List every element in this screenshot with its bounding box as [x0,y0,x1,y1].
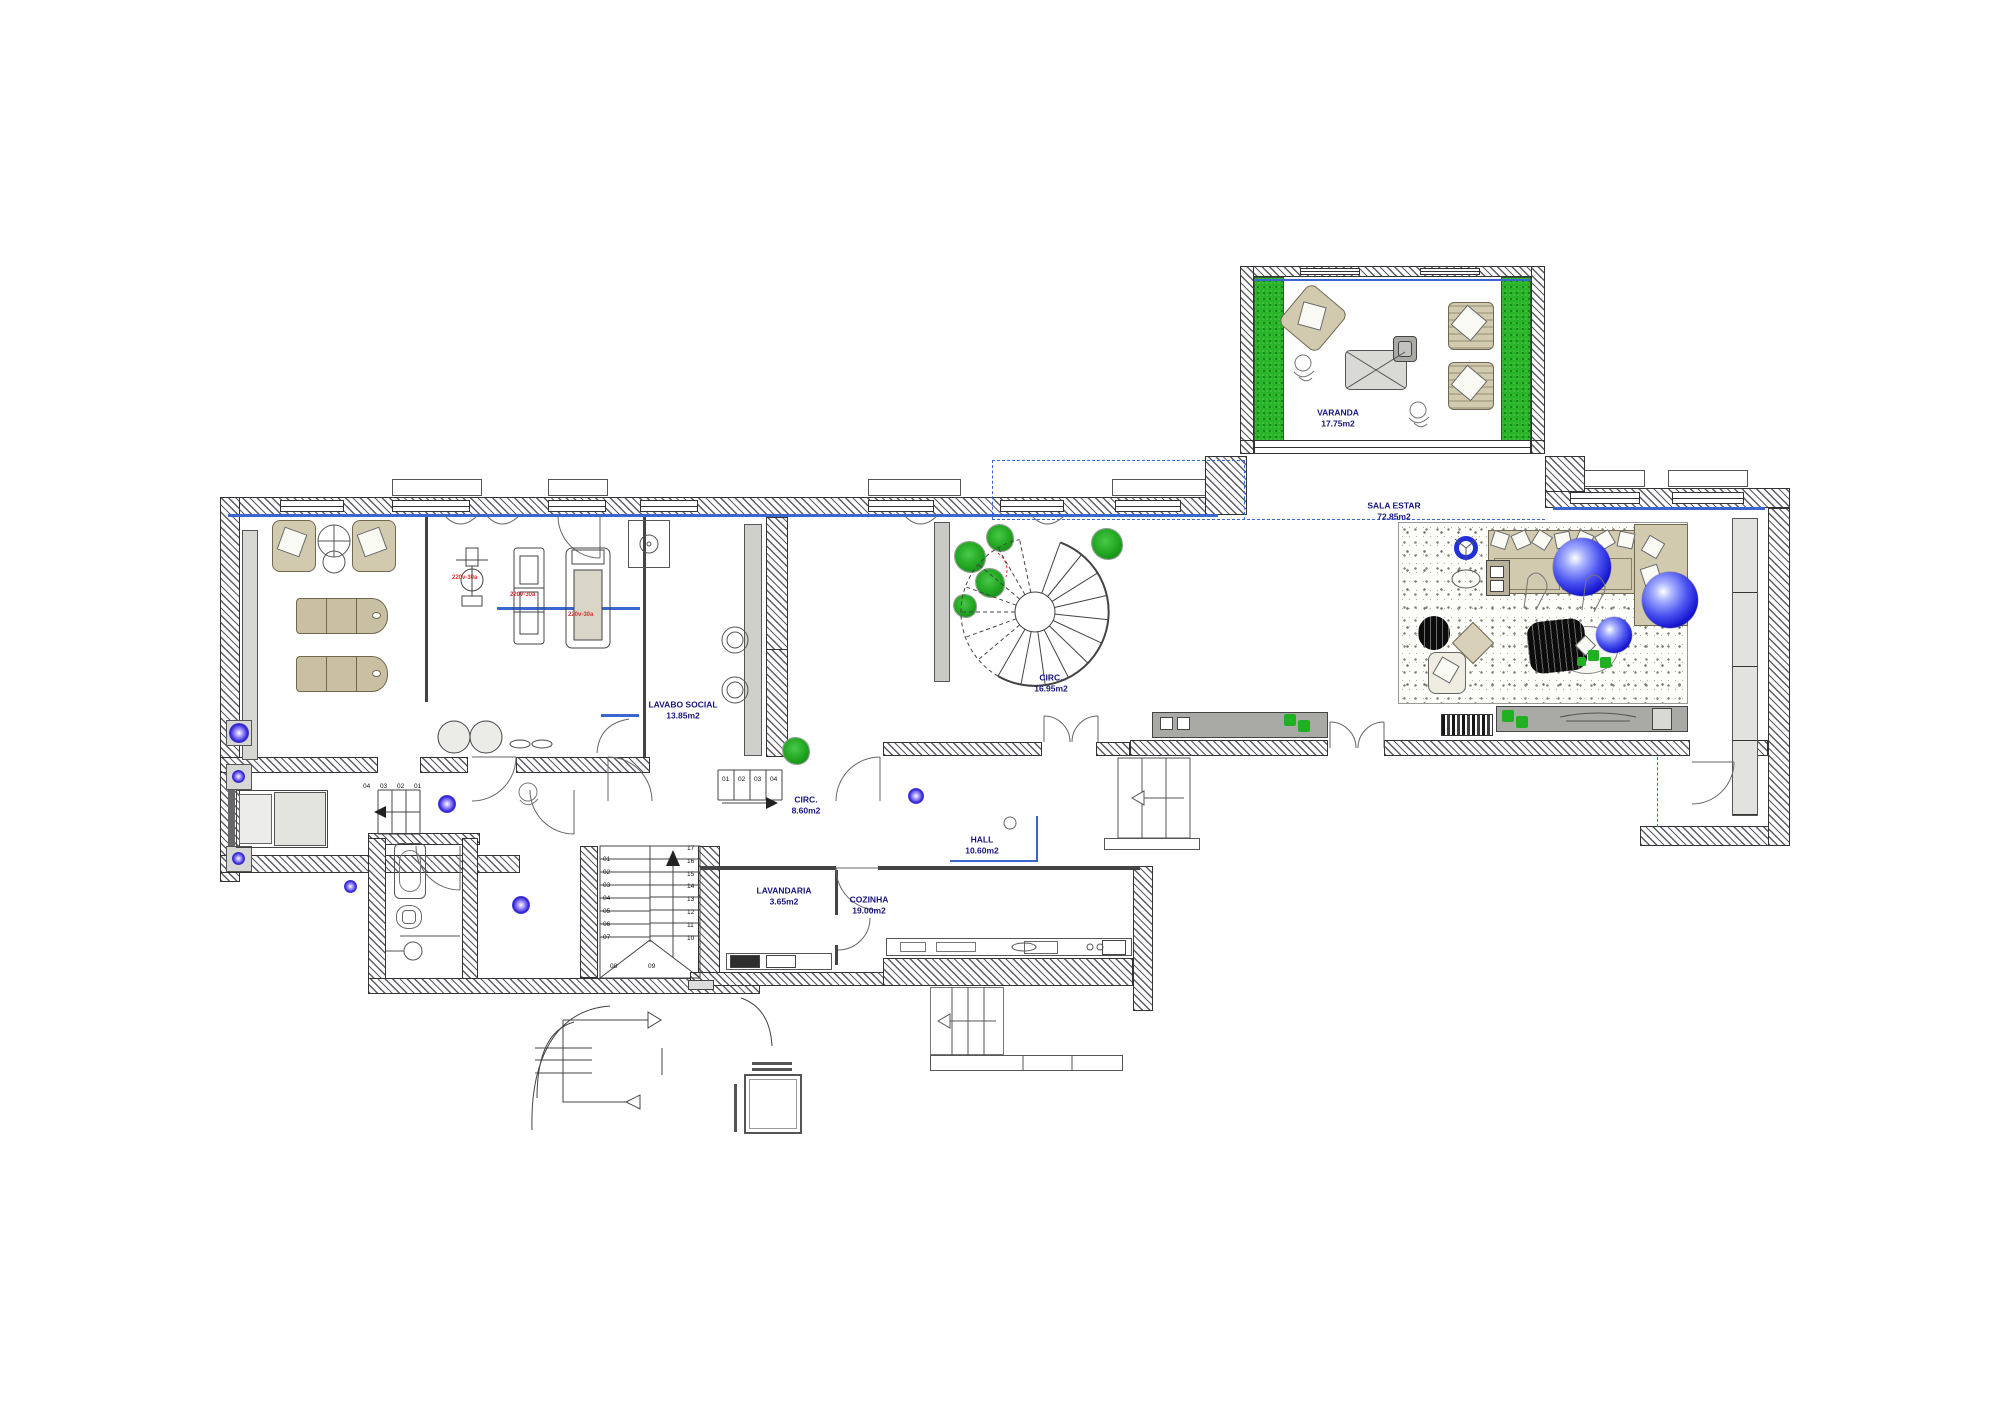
room-label-circ-spiral: CIRC. 16.95m2 [1034,672,1068,693]
wall-lavandaria-bottom [690,972,886,986]
plant-spiral-3 [976,569,1004,597]
blueline-hall-h [950,860,1038,862]
utility-box [688,980,714,990]
wall-living-bottom-b [1384,740,1690,756]
wall-hall-top-b [1096,742,1130,756]
massage-table-1-line-b [356,599,357,633]
wall-bottom-lounge-b [420,757,468,773]
lounge-round-table [318,525,350,557]
blueline-gym-2 [601,714,639,717]
glow-light-hall [908,788,924,804]
stair-num: 13 [687,897,694,904]
massage-table-1-line-a [326,599,327,633]
stair-num: 04 [363,784,370,791]
stair-num: 06 [603,922,610,929]
puzzle-deco-3 [1577,657,1586,666]
bed-headboard [228,790,235,848]
nightstand-2-light [232,852,245,865]
massage-table-1-hole [372,612,381,619]
blueline-hall-v [1036,816,1038,862]
wall-bath-left [368,838,386,990]
sofa-side-tray-2 [1490,580,1504,592]
floor-plan: 220v-30a 220v-30a 220v-30a [0,0,2000,1414]
room-name: SALA ESTAR [1367,500,1420,511]
washer [730,955,760,968]
sideboard-puzzle-1 [1284,714,1296,726]
stair-num: 02 [738,777,745,784]
puzzle-deco-1 [1588,650,1599,661]
veranda-window-top-1 [1300,268,1360,275]
sofa-side-tray-1 [1490,566,1504,578]
wall-stair-left [580,846,598,978]
stair-num: 10 [687,936,694,943]
partition-kitchen-left-a [835,870,838,915]
room-name: COZINHA [850,894,889,905]
sofa-pillow-7 [1617,531,1636,550]
stair-num: 12 [687,910,694,917]
stair-num: 05 [603,909,610,916]
wall-lavabo-right-upper [766,517,788,651]
blueline-top-right [1553,507,1765,510]
electrical-note-1: 220v-30a [452,575,477,581]
garden-stair-platform [1104,838,1200,850]
wall-living-bottom-a [1130,740,1328,756]
room-label-lavandaria: LAVANDARIA 3.65m2 [757,885,812,906]
stair-num: 02 [603,870,610,877]
room-area: 19.00m2 [850,905,889,916]
room-name: CIRC. [792,794,821,805]
wall-kitchen-bottom [883,958,1133,986]
stair-num: 02 [397,784,404,791]
bookshelf [1441,714,1493,736]
path-arrow-right [648,1012,661,1028]
electrical-note-2: 220v-30a [510,592,535,598]
wall-light-glow [229,723,249,743]
sideboard-puzzle-2 [1298,720,1310,732]
stair-num: 08 [610,964,617,971]
veranda-window-top-2 [1420,268,1480,275]
wall-veranda-top [1240,266,1545,277]
stair-num: 14 [687,884,694,891]
blueline-veranda [1254,279,1531,281]
veranda-door-band [1254,440,1531,454]
garden-bench-left [734,1084,737,1132]
puzzle-deco-2 [1600,657,1611,668]
spiral-area-column [934,522,950,682]
veranda-hedge-right [1501,277,1531,443]
room-label-lavabo: LAVABO SOCIAL 13.85m2 [648,699,717,720]
stair-num: 03 [603,883,610,890]
weight-bowl-2 [532,740,552,748]
stair-up-arrow [666,850,680,866]
room-area: 3.65m2 [757,896,812,907]
partition-lounge-gym [425,517,428,702]
wall-kitchen-right [1133,866,1153,1011]
stair-num: 16 [687,859,694,866]
wall-bath-right [462,838,478,980]
bed-steps-arrow [374,806,386,818]
stair-num: 01 [414,784,421,791]
stair-num: 17 [687,846,694,853]
blueline-gym-1 [497,607,640,610]
toilet-seat [402,910,416,924]
wall-lavabo-right-lower [766,649,788,757]
nightstand-1-light [232,770,245,783]
wall-veranda-right [1531,266,1545,454]
window-1 [280,500,344,512]
window-3 [548,500,606,512]
bathtub-inner [399,850,421,892]
room-label-varanda: VARANDA 17.75m2 [1317,407,1359,428]
lavabo-counter [744,524,762,756]
glow-light-circ [438,795,456,813]
room-area: 10.60m2 [965,845,999,856]
stair-num: 04 [603,896,610,903]
wall-right-exterior [1768,508,1790,846]
partition-kitchen-left-b [835,945,838,965]
kitchen-appliance-1 [900,942,926,952]
black-round-pouf [1418,616,1450,650]
room-name: VARANDA [1317,407,1359,418]
right-wall-cabinet [1732,518,1758,816]
main-staircase [600,846,700,978]
entry-steps-arrow [766,797,778,809]
kitchen-sink [1024,941,1058,954]
path-arrow-left [626,1095,640,1109]
partition-kitchen-top [878,866,1140,870]
stair-num: 09 [648,964,655,971]
bath-sink [404,942,422,960]
wall-veranda-left [1240,266,1254,454]
window-sill-1 [392,479,482,496]
window-sill-6 [1668,470,1748,487]
wall-veranda-stub-r [1531,440,1545,454]
blue-sphere-large-1 [1553,538,1611,596]
garden-bench-top-1 [752,1062,792,1065]
room-area: 13.85m2 [648,710,717,721]
room-name: HALL [965,834,999,845]
room-area: 16.95m2 [1034,683,1068,694]
room-name: LAVABO SOCIAL [648,699,717,710]
dryer [766,955,796,968]
stair-num: 07 [603,935,610,942]
room-label-hall: HALL 10.60m2 [965,834,999,855]
bed-pillow-zone [239,794,272,844]
linework-overlay [0,0,2000,1414]
bed-mattress [274,792,326,846]
media-puzzle-2 [1516,716,1528,728]
plant-spiral-4 [954,595,976,617]
blue-sphere-large-2 [1642,572,1698,628]
kitchen-fridge [1102,940,1126,955]
plant-spiral-5 [1092,529,1122,559]
window-4 [640,500,698,512]
room-label-circ-entry: CIRC. 8.60m2 [792,794,821,815]
glow-light-bath-entry [344,880,357,893]
exercise-ball-2 [470,721,502,753]
exterior-stair-box [930,987,1004,1055]
glow-light-corridor [512,896,530,914]
veranda-side-table-top [1398,341,1412,357]
room-area: 8.60m2 [792,805,821,816]
stair-num: 11 [687,923,694,930]
window-sill-2 [548,479,608,496]
wall-veranda-jog-right [1545,456,1585,492]
window-right-2 [1672,492,1744,504]
vestibule-dashed-line [1657,757,1658,827]
garden-table-inner [749,1079,797,1129]
window-2 [392,500,470,512]
plant-spiral-1 [955,542,985,572]
sala-estar-dashed-zone [992,460,1245,520]
veranda-hedge-left [1254,277,1284,443]
room-area: 17.75m2 [1317,418,1359,429]
blue-sphere-small [1596,617,1632,653]
stair-num: 03 [380,784,387,791]
window-5 [868,500,934,512]
plant-spiral-2 [987,525,1013,551]
massage-table-2-hole [372,670,381,677]
weight-bowl-1 [510,740,530,748]
wall-hall-top-a [883,742,1042,756]
plant-lavabo [783,738,809,764]
media-speaker [1652,708,1672,730]
wall-bottom-lounge-c [516,757,650,773]
kitchen-appliance-2 [936,942,976,952]
exercise-ball-1 [438,721,470,753]
garden-stair-arrow [1132,791,1144,805]
wall-veranda-stub-l [1240,440,1254,454]
ceiling-fan-symbol [1454,536,1478,560]
partition-lavandaria-top [700,866,836,870]
room-label-cozinha: COZINHA 19.00m2 [850,894,889,915]
stair-num: 15 [687,872,694,879]
window-right-1 [1570,492,1640,504]
sideboard-tray-1 [1160,717,1173,730]
garden-bench-top-2 [752,1068,792,1071]
stair-num: 01 [603,857,610,864]
massage-table-2-line-a [326,657,327,691]
stair-num: 03 [754,777,761,784]
electrical-note-3: 220v-30a [568,612,593,618]
window-sill-3 [868,479,961,496]
room-label-sala-estar: SALA ESTAR 72.85m2 [1367,500,1420,521]
bed-steps [374,790,420,834]
media-puzzle-1 [1502,710,1514,722]
room-name: CIRC. [1034,672,1068,683]
lavabo-shower-tray [628,520,670,568]
exterior-deck [930,1055,1123,1071]
garden-stair-right-of-hall [1118,758,1190,838]
sideboard-tray-2 [1177,717,1190,730]
stair-num: 01 [722,777,729,784]
room-name: LAVANDARIA [757,885,812,896]
hall-door-knob [1004,817,1016,829]
room-area: 72.85m2 [1367,511,1420,522]
stair-num: 04 [770,777,777,784]
massage-table-2-line-b [356,657,357,691]
